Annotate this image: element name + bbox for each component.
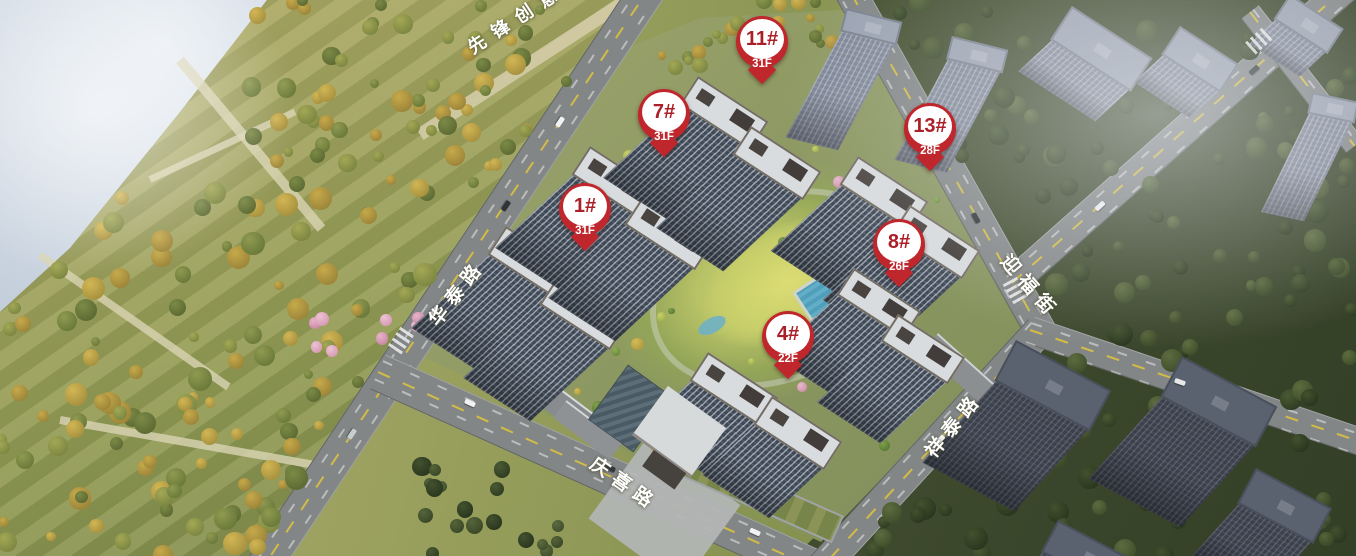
roof-detail bbox=[1211, 395, 1230, 411]
tree bbox=[244, 326, 262, 344]
pin-building-number: 7# bbox=[642, 92, 686, 132]
tree bbox=[285, 466, 309, 490]
tree bbox=[988, 125, 1009, 146]
tree bbox=[1113, 241, 1124, 252]
tree bbox=[1182, 339, 1198, 355]
tree bbox=[1167, 216, 1180, 229]
building-pin-4[interactable]: 4# 22F bbox=[760, 311, 816, 383]
tree bbox=[189, 332, 198, 341]
tree bbox=[134, 412, 156, 434]
tree bbox=[658, 51, 666, 59]
tree bbox=[65, 383, 88, 406]
tree bbox=[270, 113, 288, 131]
tree bbox=[486, 514, 502, 530]
tree bbox=[94, 394, 110, 410]
tree bbox=[15, 316, 31, 332]
roof-detail bbox=[1082, 551, 1101, 556]
aerial-site-map: 华泰路 迎福街 祥泰路 庆喜路 先锋创意 1# 31F 4# 22F 7# 31… bbox=[0, 0, 1356, 556]
tree bbox=[188, 367, 212, 391]
tree bbox=[167, 484, 181, 498]
tree bbox=[612, 347, 621, 356]
tree bbox=[909, 39, 920, 50]
tree bbox=[115, 191, 129, 205]
tree bbox=[1255, 277, 1274, 296]
tree bbox=[238, 196, 256, 214]
tree bbox=[338, 154, 357, 173]
tree bbox=[748, 358, 755, 365]
tree bbox=[426, 547, 439, 556]
roof-detail bbox=[1192, 53, 1211, 70]
tree bbox=[143, 455, 156, 468]
building-pin-11[interactable]: 11# 31F bbox=[734, 16, 790, 88]
tree bbox=[201, 428, 218, 445]
tree bbox=[1284, 294, 1297, 307]
tree bbox=[1326, 79, 1344, 97]
tree bbox=[412, 94, 425, 107]
tree bbox=[48, 436, 68, 456]
roof-detail bbox=[970, 49, 988, 63]
tree bbox=[110, 437, 123, 450]
tree bbox=[311, 341, 322, 352]
tree bbox=[450, 519, 464, 533]
tree bbox=[291, 222, 311, 242]
pin-building-number: 8# bbox=[877, 222, 921, 262]
tree bbox=[1256, 115, 1274, 133]
tree bbox=[1140, 330, 1158, 348]
roof-equipment bbox=[851, 280, 871, 299]
pin-floor-count: 26F bbox=[871, 261, 927, 273]
tree bbox=[277, 78, 297, 98]
tree bbox=[275, 193, 298, 216]
tree bbox=[66, 420, 84, 438]
roof-detail bbox=[1045, 379, 1064, 395]
tree bbox=[206, 532, 218, 544]
tree bbox=[91, 337, 101, 347]
tree bbox=[386, 175, 396, 185]
tree bbox=[362, 20, 378, 36]
roof-equipment bbox=[587, 158, 607, 177]
tree bbox=[668, 60, 683, 75]
tree bbox=[490, 482, 504, 496]
building-pin-13[interactable]: 13# 28F bbox=[902, 103, 958, 175]
tree bbox=[82, 277, 105, 300]
tree bbox=[1024, 109, 1040, 125]
tree bbox=[413, 263, 436, 286]
tree bbox=[1059, 177, 1078, 196]
tree bbox=[1213, 249, 1227, 263]
tree bbox=[1328, 258, 1345, 275]
tree bbox=[1304, 229, 1327, 252]
tree bbox=[448, 93, 465, 110]
tree bbox=[1173, 260, 1188, 275]
tree bbox=[376, 332, 389, 345]
tree bbox=[981, 6, 993, 18]
tree bbox=[115, 533, 131, 549]
tree bbox=[391, 90, 413, 112]
tree bbox=[196, 458, 207, 469]
tree bbox=[1151, 210, 1164, 223]
tree bbox=[8, 302, 21, 315]
tree bbox=[335, 54, 348, 67]
tree bbox=[183, 409, 199, 425]
tree bbox=[283, 331, 299, 347]
tree bbox=[205, 397, 216, 408]
tree bbox=[1110, 323, 1133, 346]
tree bbox=[151, 230, 174, 253]
tree bbox=[466, 517, 483, 534]
roof-equipment bbox=[739, 384, 765, 408]
roof-equipment bbox=[748, 138, 768, 157]
tree bbox=[1246, 280, 1256, 290]
roof-detail bbox=[1326, 103, 1344, 116]
tree bbox=[1035, 188, 1051, 204]
roof-equipment bbox=[803, 428, 829, 452]
tree bbox=[223, 532, 247, 556]
pin-floor-count: 22F bbox=[760, 353, 816, 365]
tree bbox=[494, 461, 511, 478]
tree bbox=[214, 508, 236, 530]
tree bbox=[380, 314, 391, 325]
tree bbox=[1135, 275, 1150, 290]
tree bbox=[0, 517, 9, 527]
tree bbox=[939, 504, 952, 517]
tree bbox=[445, 145, 466, 166]
tree bbox=[797, 382, 807, 392]
roof-detail bbox=[864, 21, 882, 35]
building-pin-8[interactable]: 8# 26F bbox=[871, 219, 927, 291]
tree bbox=[249, 539, 266, 556]
pin-building-number: 11# bbox=[740, 19, 784, 59]
pin-floor-count: 31F bbox=[734, 58, 790, 70]
tree bbox=[1342, 67, 1356, 84]
tree bbox=[46, 532, 56, 542]
building-pin-1[interactable]: 1# 31F bbox=[557, 183, 613, 255]
building-pin-7[interactable]: 7# 31F bbox=[636, 89, 692, 161]
tree bbox=[519, 125, 532, 138]
tree bbox=[1284, 106, 1295, 117]
tree bbox=[537, 539, 548, 550]
roof-equipment bbox=[926, 344, 952, 368]
tree bbox=[712, 30, 721, 39]
tree bbox=[489, 158, 502, 171]
roof-equipment bbox=[855, 168, 875, 187]
tree bbox=[245, 491, 263, 509]
tree bbox=[426, 479, 443, 496]
roof-equipment bbox=[895, 326, 915, 345]
tree bbox=[438, 116, 457, 135]
pin-building-number: 1# bbox=[563, 186, 607, 226]
tree bbox=[1301, 389, 1318, 406]
tree bbox=[1342, 350, 1356, 365]
tree bbox=[57, 311, 77, 331]
tree bbox=[1046, 144, 1066, 164]
roof-equipment bbox=[705, 364, 725, 383]
pin-building-number: 13# bbox=[908, 106, 952, 146]
tree bbox=[1082, 245, 1093, 256]
tree bbox=[224, 339, 238, 353]
tree bbox=[1142, 176, 1159, 193]
tree bbox=[75, 299, 97, 321]
tree bbox=[314, 421, 324, 431]
tree bbox=[1071, 263, 1090, 282]
roof-detail bbox=[1300, 17, 1319, 34]
pin-floor-count: 28F bbox=[902, 145, 958, 157]
tree bbox=[1319, 532, 1334, 547]
pin-floor-count: 31F bbox=[557, 225, 613, 237]
pin-building-number: 4# bbox=[766, 314, 810, 354]
tree bbox=[373, 151, 384, 162]
roof-equipment bbox=[782, 158, 808, 182]
tree bbox=[241, 232, 265, 256]
tree bbox=[297, 105, 317, 125]
tree bbox=[806, 14, 814, 22]
tree bbox=[351, 304, 363, 316]
tree bbox=[204, 182, 226, 204]
tree bbox=[692, 58, 708, 74]
tree bbox=[75, 491, 87, 503]
tree bbox=[1246, 137, 1268, 159]
roof-equipment bbox=[941, 237, 967, 261]
tree bbox=[284, 147, 294, 157]
roof-detail bbox=[1093, 42, 1112, 59]
tree bbox=[110, 268, 130, 288]
tree bbox=[83, 349, 100, 366]
roof-equipment bbox=[695, 88, 715, 107]
roof-equipment bbox=[769, 408, 789, 427]
roof-detail bbox=[1276, 499, 1295, 515]
tree bbox=[283, 438, 301, 456]
tree bbox=[318, 84, 336, 102]
tree bbox=[552, 520, 564, 532]
tree bbox=[1345, 303, 1356, 316]
tree bbox=[551, 536, 563, 548]
tree bbox=[1290, 434, 1309, 453]
tree bbox=[331, 122, 347, 138]
pin-floor-count: 31F bbox=[636, 131, 692, 143]
tree bbox=[561, 76, 572, 87]
